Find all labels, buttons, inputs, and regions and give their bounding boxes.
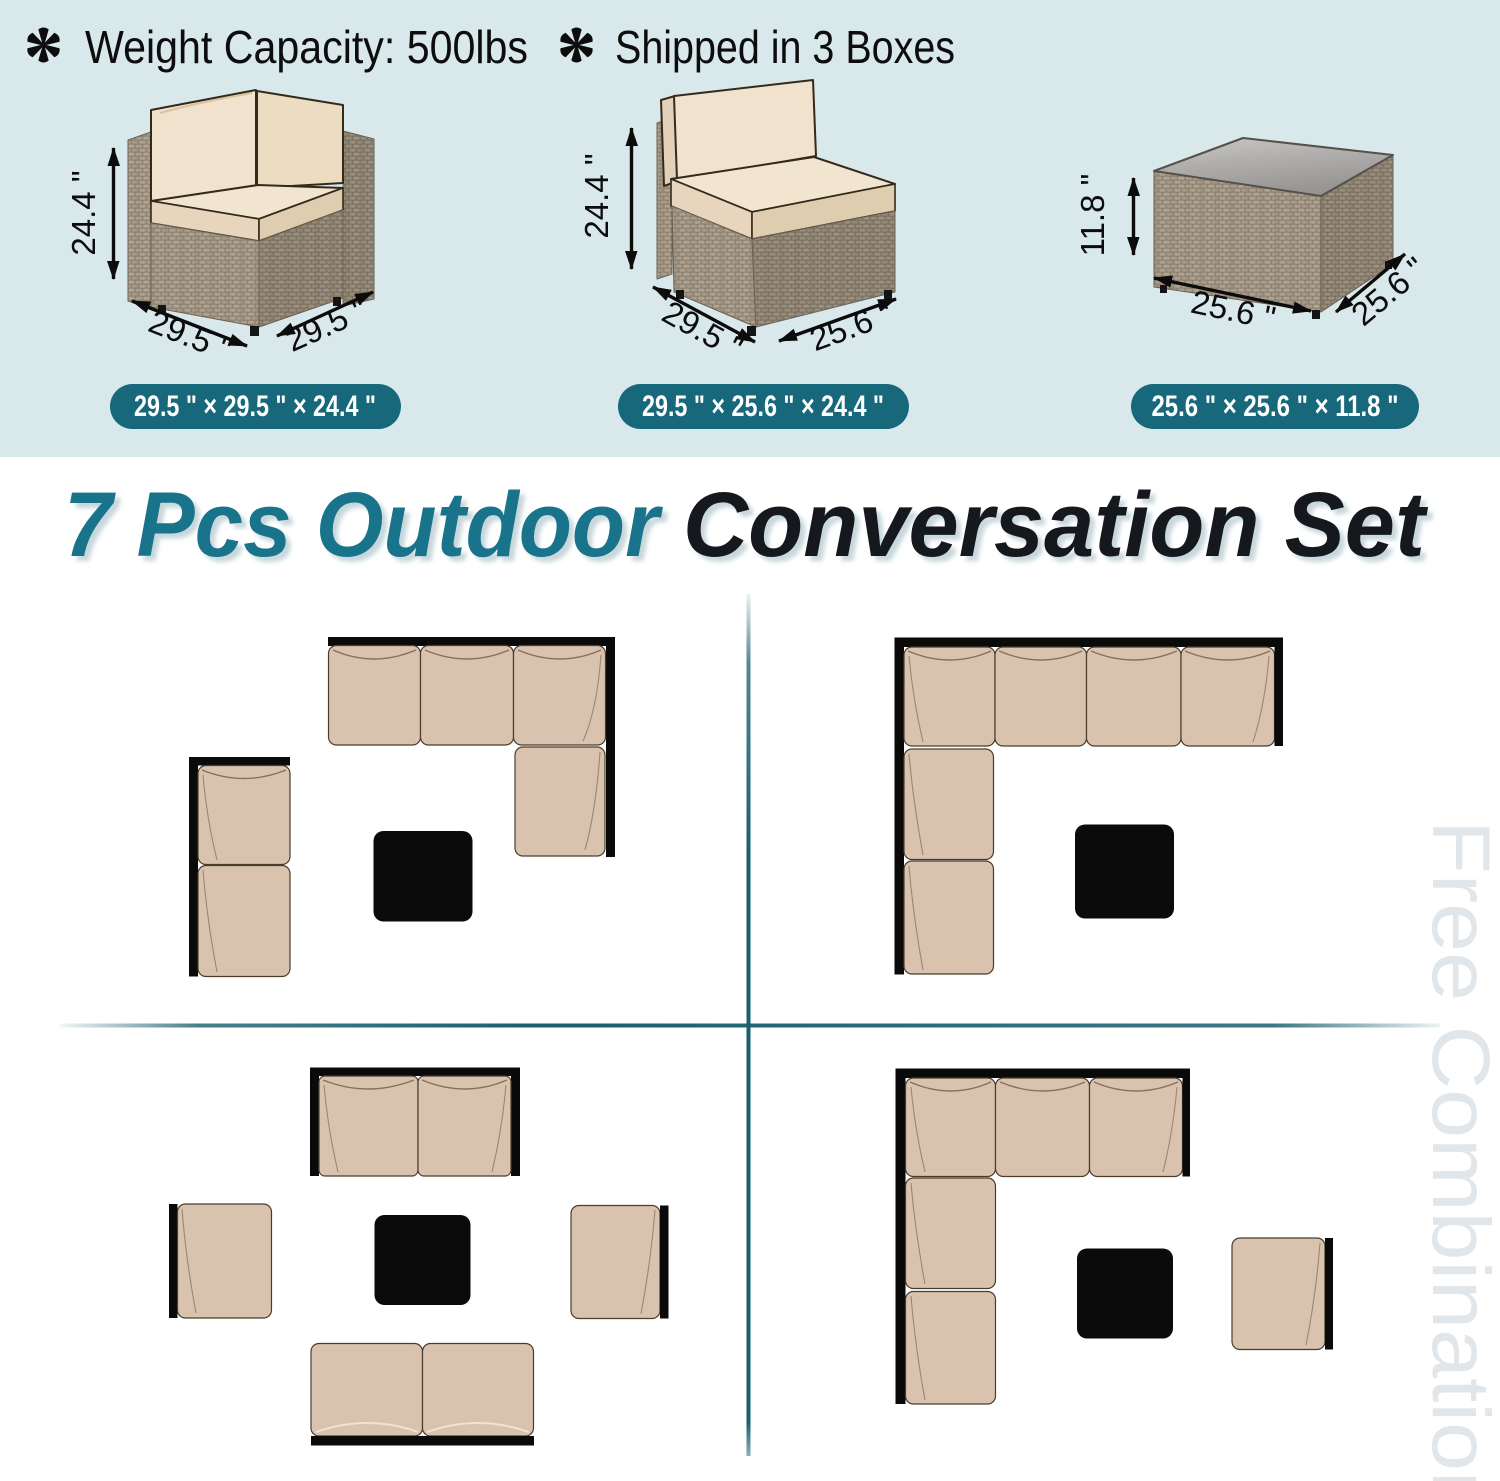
svg-text:24.4 ": 24.4 " [578,153,615,238]
svg-text:29.5 " × 29.5 " × 24.4 ": 29.5 " × 29.5 " × 24.4 " [134,390,376,423]
svg-text:29.5 " × 25.6 " × 24.4 ": 29.5 " × 25.6 " × 24.4 " [642,390,884,423]
svg-text:25.6 " × 25.6 " × 11.8 ": 25.6 " × 25.6 " × 11.8 " [1152,390,1399,423]
svg-text:11.8 ": 11.8 " [1074,174,1111,257]
svg-text:Free Combination: Free Combination [1415,820,1500,1481]
svg-text:Shipped in 3 Boxes: Shipped in 3 Boxes [615,21,955,73]
svg-text:Conversation Set: Conversation Set [683,474,1428,576]
svg-text:7 Pcs Outdoor: 7 Pcs Outdoor [64,474,663,576]
svg-text:Weight Capacity: 500lbs: Weight Capacity: 500lbs [85,21,528,73]
svg-text:24.4 ": 24.4 " [65,170,102,255]
